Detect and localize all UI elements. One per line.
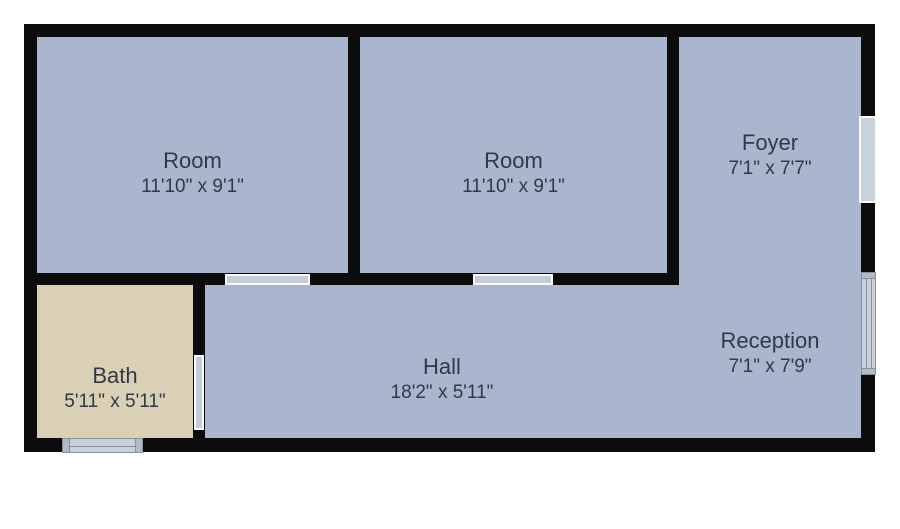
wall-room2-foyer	[667, 24, 679, 285]
window-bath-icon	[62, 438, 143, 453]
window-reception-cap-bottom	[862, 368, 875, 374]
wall-rooms-hall	[24, 273, 679, 285]
window-bath-pane-line	[70, 446, 135, 447]
wall-outer-top	[24, 24, 875, 37]
window-reception-icon	[861, 272, 876, 375]
label-reception: Reception 7'1" x 7'9"	[679, 327, 861, 380]
foyer-dimensions: 7'1" x 7'7"	[679, 156, 861, 182]
floorplan-image: Room 11'10" x 9'1" Room 11'10" x 9'1" Fo…	[0, 0, 900, 529]
foyer-name: Foyer	[679, 129, 861, 156]
label-foyer: Foyer 7'1" x 7'7"	[679, 129, 861, 182]
hall-dimensions: 18'2" x 5'11"	[205, 380, 679, 406]
window-foyer-icon	[859, 116, 877, 203]
window-reception-panes	[866, 279, 872, 368]
room1-dimensions: 11'10" x 9'1"	[37, 174, 348, 200]
wall-outer-bottom	[24, 438, 875, 452]
label-room2: Room 11'10" x 9'1"	[360, 147, 667, 200]
door-opening-bath-icon	[194, 355, 204, 430]
bath-name: Bath	[37, 362, 193, 389]
reception-name: Reception	[679, 327, 861, 354]
door-opening-room2-icon	[473, 274, 553, 285]
room2-dimensions: 11'10" x 9'1"	[360, 174, 667, 200]
room1-name: Room	[37, 147, 348, 174]
label-hall: Hall 18'2" x 5'11"	[205, 353, 679, 406]
wall-outer-right	[861, 24, 875, 452]
door-opening-room1-icon	[225, 274, 310, 285]
label-bath: Bath 5'11" x 5'11"	[37, 362, 193, 415]
window-bath-cap-left	[63, 439, 70, 452]
wall-outer-left	[24, 24, 37, 452]
label-room1: Room 11'10" x 9'1"	[37, 147, 348, 200]
wall-between-rooms	[348, 24, 360, 285]
window-bath-cap-right	[135, 439, 142, 452]
reception-dimensions: 7'1" x 7'9"	[679, 354, 861, 380]
bath-dimensions: 5'11" x 5'11"	[37, 389, 193, 415]
hall-name: Hall	[205, 353, 679, 380]
room2-name: Room	[360, 147, 667, 174]
